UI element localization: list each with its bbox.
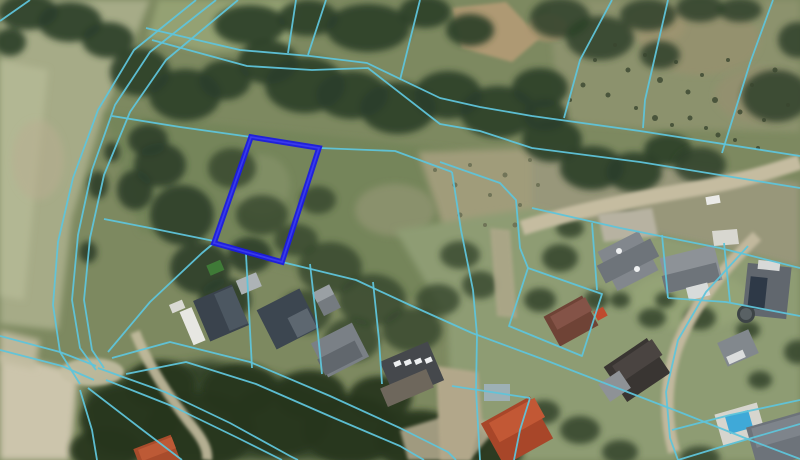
slab-white-g: [712, 229, 739, 246]
house-f-dormer2: [634, 266, 640, 272]
map-viewport[interactable]: [0, 0, 800, 460]
house-f-dormer1: [616, 248, 622, 254]
field-left-tan-patch: [12, 120, 64, 200]
aerial-map-canvas: [0, 0, 800, 460]
house-h-solar: [747, 276, 767, 310]
dirt-junction: [60, 358, 124, 386]
round-pool-dark-inner: [740, 308, 752, 320]
